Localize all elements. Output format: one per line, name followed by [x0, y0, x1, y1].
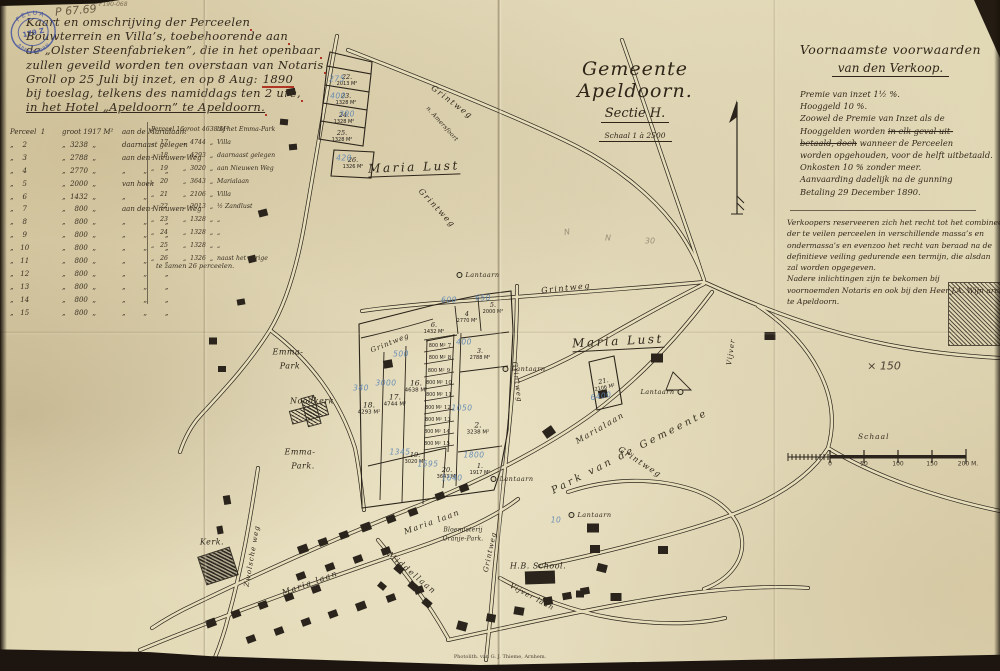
condition-line: Hooggelden worden in elk geval uit- — [800, 125, 993, 137]
cell-parcel-area: „ 800 „ — [62, 268, 122, 281]
table-footer: te zamen 26 perceelen. — [156, 262, 234, 270]
table-row: „ 13 „ 800 „ „ „ „ — [10, 281, 202, 294]
table-row: „ 19 „ 3020 „ aan Nieuwen Weg — [151, 163, 275, 176]
conditions-paragraph2-line: te Apeldoorn. — [787, 296, 1000, 307]
cell-parcel-area: „ 800 „ — [62, 203, 122, 216]
section-title: Sectie H. — [601, 106, 670, 123]
table-divider — [147, 122, 148, 304]
condition-text: Zoowel de Premie van Inzet als de — [800, 113, 945, 123]
cell-parcel-note: van hoek — [122, 178, 154, 191]
conditions-paragraph2-line: Verkoopers reserveeren zich het recht to… — [787, 217, 1000, 228]
cell-parcel-note: Villa — [217, 137, 231, 150]
municipality-title: Gemeente Apeldoorn. — [540, 58, 730, 102]
conditions-heading-line2: van den Verkoop. — [832, 61, 949, 77]
cell-parcel-area: „ 3020 „ — [183, 163, 217, 176]
table-row: „ 18 „ 4293 „ daarnaast gelegen — [151, 150, 275, 163]
cell-parcel-no: „ 5 — [10, 178, 62, 191]
cell-parcel-no: „ 20 — [151, 176, 183, 189]
cell-parcel-area: „ 2788 „ — [62, 152, 122, 165]
cell-parcel-area: „ 1328 „ — [183, 214, 217, 227]
title-red-text — [265, 100, 267, 116]
cell-parcel-note: „ „ „ — [122, 294, 168, 307]
cell-parcel-no: „ 11 — [10, 255, 62, 268]
condition-text: Hooggeld 10 %. — [800, 101, 867, 111]
cell-parcel-no: Perceel 16 — [151, 124, 183, 137]
cell-parcel-no: „ 7 — [10, 203, 62, 216]
photo-edge — [994, 0, 1000, 671]
cell-parcel-area: „ 800 „ — [62, 294, 122, 307]
cell-parcel-area: groot 4638 M² — [183, 124, 217, 137]
condition-line: Betaling 29 December 1890. — [800, 186, 993, 198]
condition-text: Aanvaarding dadelijk na de gunning — [800, 174, 953, 184]
cell-parcel-no: „ 12 — [10, 268, 62, 281]
title-red-text — [324, 58, 326, 74]
title-line: in het Hotel „Apeldoorn” te Apeldoorn. — [26, 100, 326, 114]
cell-parcel-area: „ 800 „ — [62, 242, 122, 255]
cell-parcel-no: „ 2 — [10, 139, 62, 152]
scale-bar — [788, 449, 966, 464]
title-line: bij toeslag, telkens des namiddags ten 2… — [26, 86, 326, 100]
condition-text: Onkosten 10 % zonder meer. — [800, 162, 921, 172]
condition-line: Hooggeld 10 %. — [800, 100, 993, 112]
condition-line: worden opgehouden, voor de helft uitbeta… — [800, 149, 993, 161]
table-row: „ 15 „ 800 „ „ „ „ — [10, 307, 202, 320]
cell-parcel-note: ½ Zandlust — [217, 201, 253, 214]
table-row: „ 24 „ 1328 „ „ — [151, 227, 275, 240]
cell-parcel-note: daarnaast gelegen — [217, 150, 275, 163]
condition-text: wanneer de Perceelen — [857, 138, 953, 148]
conditions-divider — [790, 210, 976, 211]
parcel-table-right: Perceel 16 groot 4638 M² bij het Emma-Pa… — [151, 124, 275, 266]
cell-parcel-no: „ 21 — [151, 189, 183, 202]
cell-parcel-area: „ 3643 „ — [183, 176, 217, 189]
title-line: de „Olster Steenfabrieken”, die in het o… — [26, 43, 326, 57]
table-row: „ 22 „ 2013 „ ½ Zandlust — [151, 201, 275, 214]
conditions-paragraph2-line: ondermassa’s en evenzoo het recht van be… — [787, 240, 1000, 251]
condition-line: Zoowel de Premie van Inzet als de — [800, 112, 993, 124]
conditions-heading: Voornaamste voorwaarden van den Verkoop. — [798, 42, 983, 77]
cell-parcel-no: „ 9 — [10, 229, 62, 242]
conditions-paragraph2-line: zal worden opgegeven. — [787, 262, 1000, 273]
title-text: in het Hotel „Apeldoorn” te Apeldoorn. — [26, 100, 265, 114]
cell-parcel-note: „ „ „ — [122, 281, 168, 294]
cell-parcel-area: „ 1328 „ — [183, 240, 217, 253]
cell-parcel-no: „ 22 — [151, 201, 183, 214]
condition-struck-text: betaald, doch — [800, 138, 857, 148]
cell-parcel-no: „ 23 — [151, 214, 183, 227]
title-text: zullen geveild worden ten overstaan van … — [26, 58, 324, 72]
condition-text: Hooggelden worden — [800, 126, 888, 136]
cell-parcel-note: „ — [217, 214, 220, 227]
cell-parcel-no: „ 4 — [10, 165, 62, 178]
conditions-paragraph2-line: definitieve veiling gedurende een termij… — [787, 251, 1000, 262]
title-text: Bouwterrein en Villa’s, toebehoorende aa… — [26, 29, 288, 43]
title-line: Bouwterrein en Villa’s, toebehoorende aa… — [26, 29, 326, 43]
school-building — [525, 570, 555, 584]
cell-parcel-no: „ 14 — [10, 294, 62, 307]
cell-parcel-note: bij het Emma-Park — [217, 124, 275, 137]
cell-parcel-area: „ 800 „ — [62, 255, 122, 268]
title-red-text — [301, 86, 303, 102]
cell-parcel-no: Perceel 1 — [10, 126, 62, 139]
table-row: Perceel 16 groot 4638 M² bij het Emma-Pa… — [151, 124, 275, 137]
condition-line: Onkosten 10 % zonder meer. — [800, 161, 993, 173]
stamp-arc-top: FELUA — [14, 7, 48, 25]
photo-edge — [0, 0, 7, 671]
cell-parcel-area: „ 1432 „ — [62, 191, 122, 204]
scale-note: Schaal 1 à 2500 — [599, 131, 672, 142]
cell-parcel-area: „ 800 „ — [62, 229, 122, 242]
cell-parcel-area: „ 800 „ — [62, 307, 122, 320]
table-row: „ 20 „ 3643 „ Marialaan — [151, 176, 275, 189]
cell-parcel-area: „ 3238 „ — [62, 139, 122, 152]
table-row: „ 14 „ 800 „ „ „ „ — [10, 294, 202, 307]
scale-title: Schaal — [858, 432, 890, 441]
cell-parcel-area: groot 1917 M² — [62, 126, 122, 139]
condition-text: worden opgehouden, voor de helft uitbeta… — [800, 150, 993, 160]
title-block: Kaart en omschrijving der Perceelen Bouw… — [26, 15, 326, 114]
cell-parcel-area: „ 2770 „ — [62, 165, 122, 178]
cell-parcel-area: „ 1328 „ — [183, 227, 217, 240]
cell-parcel-area: „ 800 „ — [62, 216, 122, 229]
conditions-paragraph2-line: Nadere inlichtingen zijn te bekomen bij — [787, 273, 1000, 284]
table-row: „ 17 „ 4744 „ Villa — [151, 137, 275, 150]
printer-credit: Photolith. van G. J. Thieme, Arnhem. — [454, 654, 546, 660]
svg-text:FELUA: FELUA — [14, 7, 48, 25]
condition-line: Premie van inzet 1½ %. — [800, 88, 993, 100]
scanned-map-document: Maria LustMaria LustGrintwegn. Amersfoor… — [0, 0, 1000, 671]
table-row: „ 21 „ 2106 „ Villa — [151, 189, 275, 202]
cell-parcel-no: „ 25 — [151, 240, 183, 253]
cell-parcel-note: „ — [217, 240, 220, 253]
cell-parcel-note: Marialaan — [217, 176, 249, 189]
condition-text: Premie van inzet 1½ %. — [800, 89, 900, 99]
title-text: Groll op 25 Juli bij inzet, en op 8 Aug: — [26, 72, 262, 86]
stamp-number: 179 Z — [22, 27, 45, 39]
cell-parcel-no: „ 6 — [10, 191, 62, 204]
cell-parcel-area: „ 2000 „ — [62, 178, 122, 191]
cell-parcel-no: „ 15 — [10, 307, 62, 320]
conditions-heading-line1: Voornaamste voorwaarden — [798, 42, 983, 57]
cell-parcel-no: „ 13 — [10, 281, 62, 294]
cell-parcel-note: „ „ „ — [122, 307, 168, 320]
condition-line: Aanvaarding dadelijk na de gunning — [800, 173, 993, 185]
cell-parcel-area: „ 4293 „ — [183, 150, 217, 163]
condition-text: Betaling 29 December 1890. — [800, 187, 921, 197]
cell-parcel-area: „ 2013 „ — [183, 201, 217, 214]
cell-parcel-no: „ 3 — [10, 152, 62, 165]
cell-parcel-no: „ 19 — [151, 163, 183, 176]
cell-parcel-note: „ — [217, 227, 220, 240]
map-title: Gemeente Apeldoorn. Sectie H. Schaal 1 à… — [540, 58, 730, 142]
cell-parcel-no: „ 18 — [151, 150, 183, 163]
north-arrow-icon — [729, 100, 744, 214]
cell-parcel-area: „ 800 „ — [62, 281, 122, 294]
cell-parcel-no: „ 8 — [10, 216, 62, 229]
title-text: bij toeslag, telkens des namiddags ten 2… — [26, 86, 301, 100]
cell-parcel-no: „ 10 — [10, 242, 62, 255]
title-text: de „Olster Steenfabrieken”, die in het o… — [26, 43, 320, 57]
conditions-paragraph2: Verkoopers reserveeren zich het recht to… — [787, 217, 1000, 307]
cell-parcel-note: Villa — [217, 189, 231, 202]
title-line: zullen geveild worden ten overstaan van … — [26, 58, 326, 72]
condition-struck-text: in elk geval uit- — [888, 126, 953, 136]
cell-parcel-no: „ 17 — [151, 137, 183, 150]
conditions-paragraph2-line: voornoemden Notaris en ook bij den Heer … — [787, 285, 1000, 296]
cell-parcel-no: „ 24 — [151, 227, 183, 240]
cell-parcel-note: aan Nieuwen Weg — [217, 163, 274, 176]
title-line: Groll op 25 Juli bij inzet, en op 8 Aug:… — [26, 72, 326, 86]
condition-line: betaald, doch wanneer de Perceelen — [800, 137, 993, 149]
cell-parcel-area: „ 2106 „ — [183, 189, 217, 202]
conditions-paragraph2-line: der te veilen perceelen in verschillende… — [787, 228, 1000, 239]
cell-parcel-note: „ „ — [122, 191, 147, 204]
cell-parcel-area: „ 4744 „ — [183, 137, 217, 150]
table-row: „ 23 „ 1328 „ „ — [151, 214, 275, 227]
table-row: „ 25 „ 1328 „ „ — [151, 240, 275, 253]
conditions-text: Premie van inzet 1½ %. Hooggeld 10 %. Zo… — [800, 88, 993, 198]
